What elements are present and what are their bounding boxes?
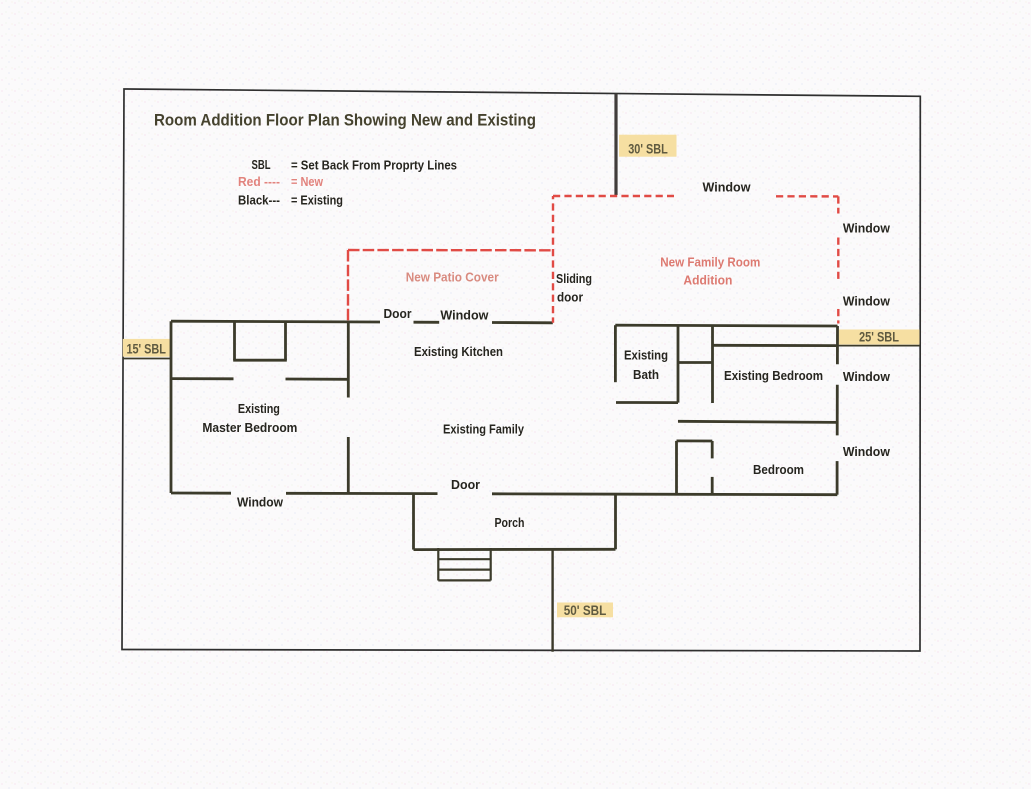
svg-text:Existing: Existing <box>624 348 668 363</box>
svg-text:50' SBL: 50' SBL <box>564 603 607 618</box>
svg-text:Sliding: Sliding <box>556 271 592 286</box>
svg-text:= Set Back From Proprty Lines: = Set Back From Proprty Lines <box>291 157 457 172</box>
svg-text:Existing: Existing <box>238 401 280 416</box>
svg-text:Master Bedroom: Master Bedroom <box>202 420 297 435</box>
svg-text:Bedroom: Bedroom <box>753 462 804 477</box>
svg-text:door: door <box>557 290 583 305</box>
svg-text:Porch: Porch <box>495 515 525 530</box>
svg-text:Window: Window <box>843 444 890 459</box>
svg-text:25' SBL: 25' SBL <box>859 329 899 344</box>
svg-text:Addition: Addition <box>683 273 732 288</box>
svg-text:Black---: Black--- <box>238 192 280 207</box>
svg-text:Window: Window <box>843 221 890 236</box>
svg-text:= New: = New <box>291 174 323 189</box>
svg-text:Window: Window <box>843 294 890 309</box>
svg-text:15' SBL: 15' SBL <box>126 341 166 357</box>
svg-text:SBL: SBL <box>252 157 271 172</box>
svg-text:Door: Door <box>451 477 480 492</box>
svg-text:30' SBL: 30' SBL <box>628 140 668 156</box>
svg-text:Bath: Bath <box>633 367 659 382</box>
svg-text:Existing Bedroom: Existing Bedroom <box>724 368 823 383</box>
svg-text:New Patio Cover: New Patio Cover <box>406 270 499 285</box>
svg-text:= Existing: = Existing <box>291 192 343 207</box>
svg-text:Door: Door <box>384 306 412 321</box>
svg-text:Existing Family: Existing Family <box>443 422 525 437</box>
svg-text:Window: Window <box>843 369 890 384</box>
svg-text:Existing Kitchen: Existing Kitchen <box>414 344 503 359</box>
svg-text:Window: Window <box>440 308 488 323</box>
svg-text:New Family Room: New Family Room <box>660 255 760 270</box>
svg-text:Red ----: Red ---- <box>238 174 280 189</box>
svg-text:Room Addition Floor Plan Showi: Room Addition Floor Plan Showing New and… <box>154 112 536 130</box>
svg-text:Window: Window <box>703 180 751 195</box>
svg-text:Window: Window <box>237 495 283 510</box>
